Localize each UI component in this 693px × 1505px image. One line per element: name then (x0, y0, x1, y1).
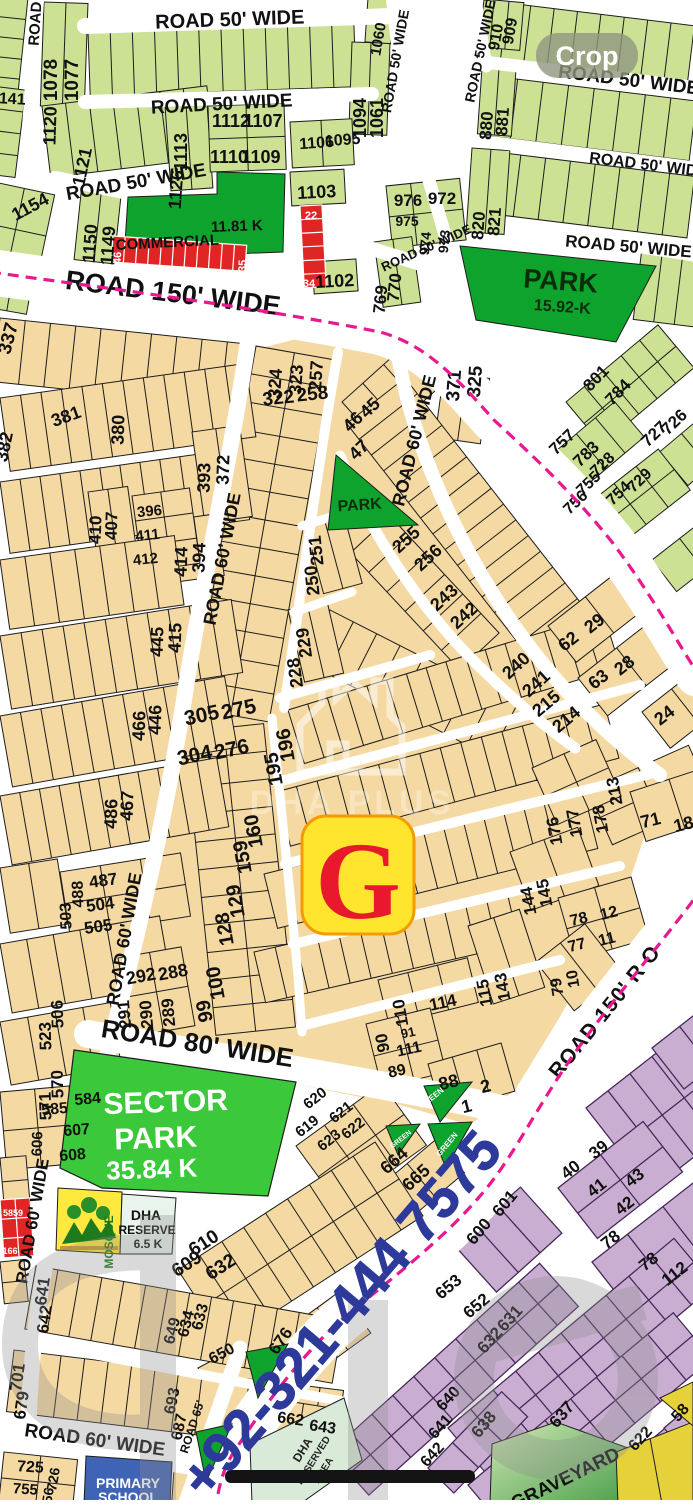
svg-text:755: 755 (12, 1480, 38, 1499)
svg-text:1103: 1103 (297, 181, 337, 203)
svg-text:Crop: Crop (556, 41, 619, 71)
svg-text:821: 821 (484, 207, 505, 237)
svg-text:ROAD: ROAD (25, 1, 45, 46)
svg-text:322: 322 (262, 386, 296, 410)
svg-text:1095: 1095 (324, 131, 361, 150)
svg-text:881: 881 (492, 107, 513, 137)
svg-text:504: 504 (85, 893, 116, 916)
svg-text:289: 289 (158, 998, 179, 1028)
svg-text:770: 770 (384, 272, 406, 302)
svg-text:1077: 1077 (62, 59, 83, 101)
svg-text:725: 725 (16, 1458, 44, 1477)
svg-text:90: 90 (372, 1032, 394, 1054)
svg-text:18: 18 (671, 812, 693, 836)
svg-text:SECTOR: SECTOR (103, 1084, 229, 1121)
svg-text:251: 251 (305, 535, 328, 567)
svg-text:258: 258 (296, 382, 330, 406)
svg-text:34: 34 (303, 278, 316, 290)
svg-text:380: 380 (107, 414, 128, 445)
svg-text:523: 523 (36, 1022, 56, 1051)
svg-text:446: 446 (144, 704, 165, 735)
svg-text:487: 487 (88, 869, 119, 892)
svg-text:411: 411 (135, 526, 161, 545)
svg-text:1102: 1102 (315, 270, 355, 292)
svg-text:35: 35 (237, 260, 249, 273)
svg-text:325: 325 (464, 365, 487, 399)
svg-text:372: 372 (212, 454, 233, 485)
svg-text:412: 412 (132, 550, 159, 570)
svg-text:393: 393 (193, 462, 214, 493)
svg-text:35.84 K: 35.84 K (106, 1152, 198, 1185)
svg-text:91: 91 (399, 1024, 416, 1042)
svg-text:166: 166 (2, 1246, 17, 1256)
svg-text:1107: 1107 (243, 111, 282, 131)
svg-text:PARK: PARK (522, 263, 599, 298)
svg-text:503: 503 (58, 902, 76, 929)
svg-text:505: 505 (83, 915, 114, 938)
svg-text:250: 250 (301, 565, 324, 597)
svg-text:606: 606 (29, 1131, 47, 1157)
svg-text:229: 229 (292, 627, 316, 660)
svg-text:DHA PLUS: DHA PLUS (250, 784, 455, 822)
svg-text:1120: 1120 (39, 106, 60, 146)
svg-text:1109: 1109 (241, 147, 280, 167)
svg-text:99: 99 (192, 998, 218, 1024)
svg-text:976: 976 (394, 191, 422, 210)
svg-text:467: 467 (116, 790, 137, 821)
svg-text:396: 396 (136, 502, 163, 522)
svg-text:608: 608 (59, 1146, 87, 1165)
svg-text:290: 290 (136, 1000, 157, 1030)
svg-text:89: 89 (387, 1061, 408, 1081)
svg-text:22: 22 (305, 210, 317, 222)
svg-text:46: 46 (112, 252, 124, 265)
svg-text:G: G (315, 820, 401, 942)
svg-text:141: 141 (0, 90, 26, 108)
svg-text:584: 584 (74, 1090, 102, 1109)
svg-text:394: 394 (188, 542, 209, 573)
svg-text:PARK: PARK (337, 495, 383, 515)
svg-text:415: 415 (164, 622, 185, 653)
svg-text:607: 607 (63, 1121, 91, 1140)
svg-text:291: 291 (114, 1000, 135, 1030)
svg-text:5859: 5859 (3, 1208, 23, 1218)
svg-text:975: 975 (395, 213, 419, 229)
svg-text:972: 972 (428, 189, 456, 208)
svg-text:228: 228 (283, 657, 307, 690)
svg-text:407: 407 (102, 511, 122, 540)
svg-text:PARK: PARK (114, 1121, 198, 1157)
svg-text:585: 585 (41, 1100, 69, 1119)
svg-text:1078: 1078 (41, 59, 62, 101)
svg-text:10: 10 (564, 968, 584, 989)
